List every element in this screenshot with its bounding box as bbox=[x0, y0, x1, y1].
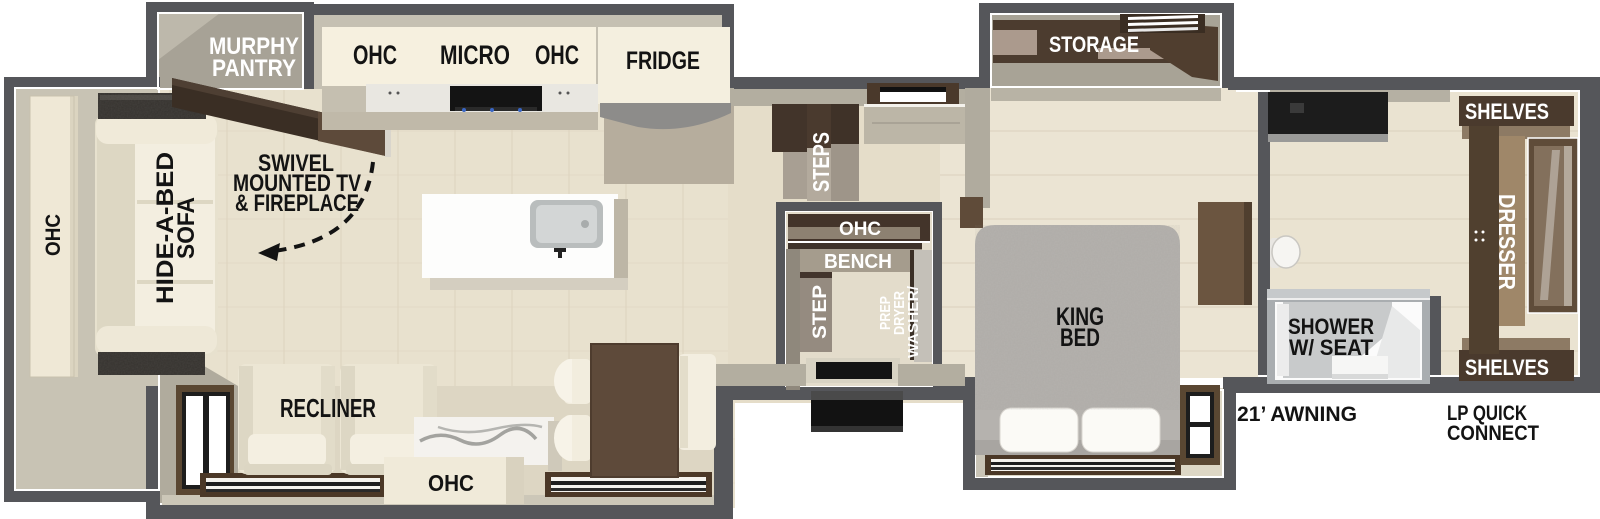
svg-text:DRYER: DRYER bbox=[892, 291, 908, 335]
svg-text:FRIDGE: FRIDGE bbox=[626, 47, 700, 75]
svg-text:21’ AWNING: 21’ AWNING bbox=[1237, 403, 1357, 426]
svg-text:PANTRY: PANTRY bbox=[212, 55, 296, 82]
svg-text:OHC: OHC bbox=[428, 470, 474, 496]
svg-text:WASHER/: WASHER/ bbox=[906, 286, 922, 358]
svg-text:SHELVES: SHELVES bbox=[1465, 355, 1549, 380]
svg-text:MICRO: MICRO bbox=[440, 40, 510, 70]
svg-text:& FIREPLACE: & FIREPLACE bbox=[235, 190, 359, 217]
svg-text:OHC: OHC bbox=[42, 214, 65, 256]
svg-text:OHC: OHC bbox=[353, 40, 397, 70]
svg-text:STORAGE: STORAGE bbox=[1049, 32, 1139, 57]
svg-text:SHELVES: SHELVES bbox=[1465, 99, 1549, 124]
svg-text:BENCH: BENCH bbox=[824, 251, 892, 273]
svg-text:CONNECT: CONNECT bbox=[1447, 422, 1539, 445]
svg-text:STEP: STEP bbox=[810, 285, 831, 339]
svg-text:OHC: OHC bbox=[535, 40, 579, 70]
svg-text:STEPS: STEPS bbox=[808, 132, 834, 192]
svg-text:DRESSER: DRESSER bbox=[1494, 194, 1520, 290]
svg-text:W/ SEAT: W/ SEAT bbox=[1289, 335, 1374, 360]
svg-text:BED: BED bbox=[1060, 324, 1100, 352]
svg-text:SOFA: SOFA bbox=[173, 197, 200, 259]
svg-text:OHC: OHC bbox=[839, 219, 881, 240]
svg-text:RECLINER: RECLINER bbox=[280, 393, 376, 423]
svg-text:PREP: PREP bbox=[878, 296, 894, 330]
